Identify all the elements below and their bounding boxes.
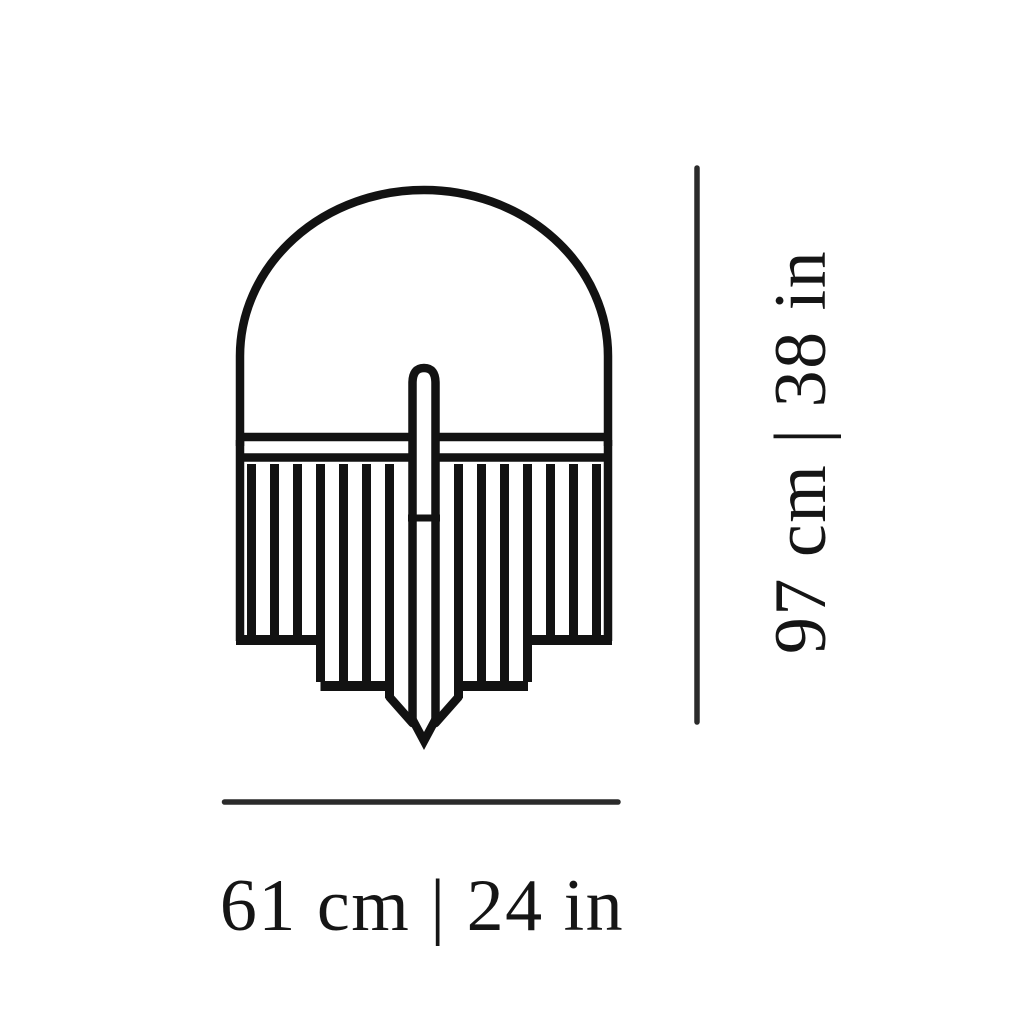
dome-outline: [240, 190, 608, 446]
fringe-strands-middle: [321, 464, 528, 682]
width-dimension-label: 61 cm | 24 in: [220, 869, 624, 943]
center-tier-diagonals: [390, 697, 459, 723]
fringe-strands-center-edges: [390, 464, 459, 698]
center-stem-outline: [413, 368, 436, 719]
height-dimension-label: 97 cm | 38 in: [764, 250, 838, 654]
lamp-outline-group: [236, 190, 612, 741]
fringe-strands-outer: [252, 464, 597, 636]
canopy-band-lines: [236, 437, 612, 458]
diagram-canvas: 97 cm | 38 in 61 cm | 24 in: [0, 0, 1024, 1024]
tier-bottom-rails: [236, 640, 612, 686]
center-tip-point: [413, 720, 436, 742]
